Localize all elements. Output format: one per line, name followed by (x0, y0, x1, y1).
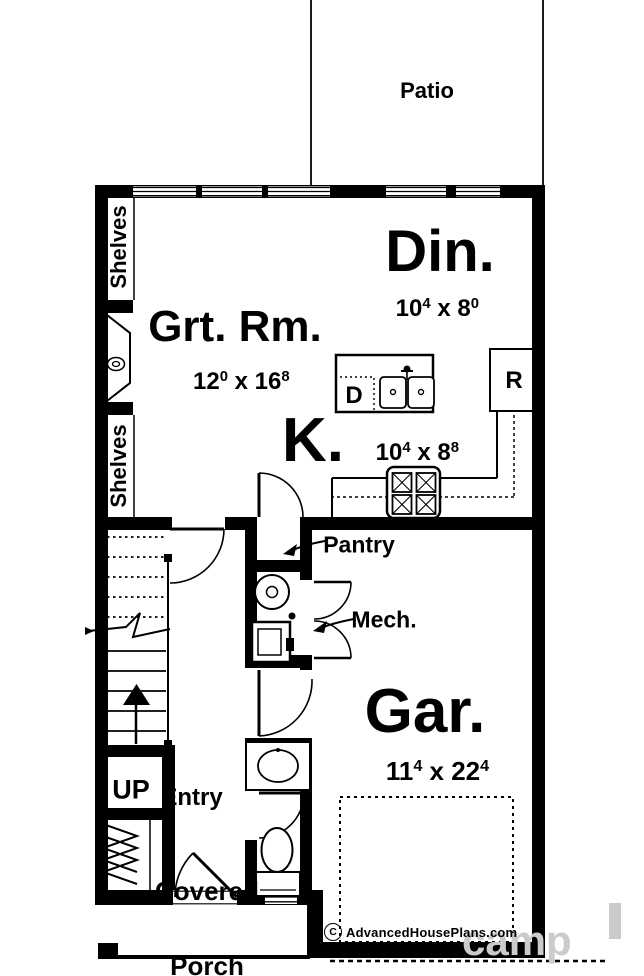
kitchen-dimensions: 104 x 88 (349, 417, 459, 489)
stair-treads-dashed (107, 537, 166, 617)
mech-fixtures (252, 575, 296, 662)
window-icon (133, 186, 196, 196)
great-room-dimensions: 120 x 168 (166, 346, 289, 418)
mech-label: Mech. (351, 609, 416, 632)
patio-label: Patio (400, 80, 454, 102)
closet-rod-icon (103, 820, 150, 890)
window-icon (386, 186, 446, 196)
refrigerator-label: R (505, 369, 522, 393)
copyright-text: AdvancedHousePlans.com (346, 925, 517, 940)
covered-porch-label: Covered Porch (155, 829, 259, 976)
window-icon (202, 186, 262, 196)
up-label: UP (112, 777, 150, 804)
watermark-bar (609, 903, 621, 939)
dining-dimensions: 104 x 80 (369, 273, 479, 345)
copyright-symbol-icon: C (324, 923, 342, 941)
great-room-door (170, 529, 224, 583)
floor-plan-linework (0, 0, 644, 976)
entry-label: Entry (161, 786, 222, 810)
vanity-sink-icon (246, 742, 310, 790)
pantry-door (259, 473, 303, 517)
up-arrow-icon (123, 684, 150, 744)
window-icon (268, 186, 330, 196)
floor-plan: camp Patio Din. 104 x 80 Grt. Rm. 120 x … (0, 0, 644, 976)
water-heater-icon (255, 575, 289, 609)
copyright: C AdvancedHousePlans.com (324, 923, 517, 941)
great-room-label: Grt. Rm. (148, 305, 322, 349)
furnace-icon (252, 622, 294, 662)
garage-dimensions: 114 x 224 (357, 732, 489, 810)
pantry-label: Pantry (323, 534, 395, 557)
shelves-upper-label: Shelves (108, 205, 130, 288)
shelves-lower-label: Shelves (108, 424, 130, 507)
window-icon (456, 186, 500, 196)
kitchen-label: K. (282, 410, 344, 472)
garage-entry-door (259, 670, 312, 736)
dishwasher-label: D (345, 384, 362, 408)
